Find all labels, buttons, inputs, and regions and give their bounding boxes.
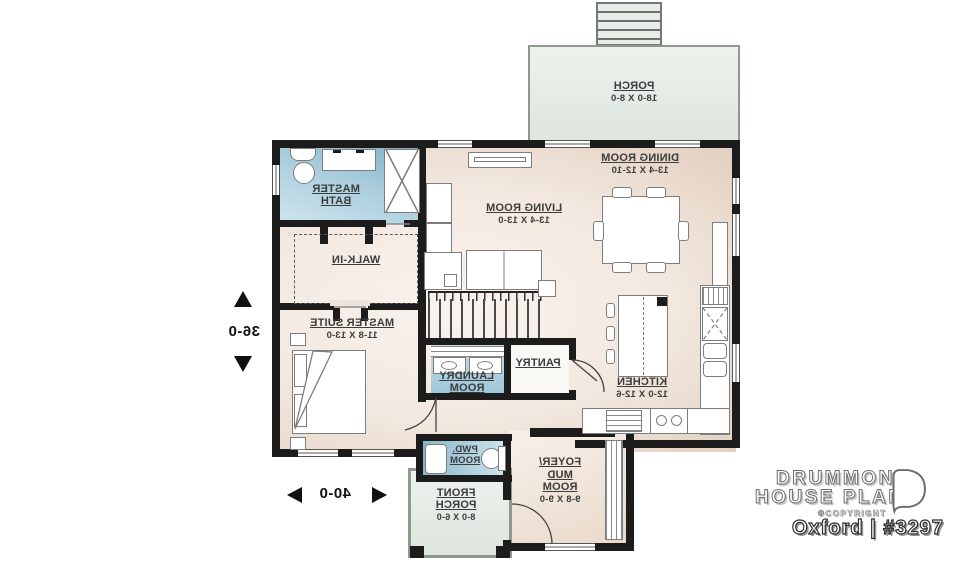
porch-post-right [496,546,510,558]
dining-chair [612,187,632,198]
kitchen-sink-bowl [703,361,727,377]
room-name: PANTRY [515,357,560,369]
floor-plan: PORCH 18-0 X 8-0 DINING ROOM 13-4 X 12-1… [0,0,960,569]
rear-steps [596,2,662,46]
room-label-powder: PWD. ROOM [446,443,484,469]
room-label-walkin: WALK-IN [328,253,384,267]
nightstand [290,437,306,450]
room-label-laundry: LAUNDRY ROOM [438,370,496,394]
stool [606,326,615,341]
dim-width-text: 40-0 [319,485,351,502]
burner [671,415,682,426]
room-name: FOYER/ MUD ROOM [530,456,590,493]
wall-laundry-pantry [504,340,511,400]
fridge [702,287,728,305]
room-label-porch: PORCH 18-0 X 8-0 [594,78,674,106]
room-label-dining: DINING ROOM 13-4 X 12-10 [592,150,688,178]
window [655,140,700,148]
corner-cabinet [702,307,728,341]
buffet [712,222,728,288]
room-dims: 13-4 X 13-0 [498,215,550,226]
logo-d-icon [884,462,930,514]
wall-foyer-right [626,434,634,551]
window [732,178,740,204]
dining-chair [646,262,666,273]
dryer-door [477,361,493,370]
dishwasher [606,410,642,432]
arrow-down-icon [234,356,252,372]
wall-pwd-top [416,434,512,441]
wall-bath-bottom2 [404,220,420,227]
room-dims: 18-0 X 8-0 [611,93,657,104]
wall-walkin-bottom1 [280,303,334,310]
side-table [538,280,556,297]
media-console-detail [474,157,526,162]
room-name: PORCH [614,80,655,92]
window [438,140,472,148]
window [545,543,595,551]
arrow-up-icon [234,291,252,307]
wall-stairs-bottom [424,338,576,345]
pwd-toilet-tank [498,446,506,471]
room-name: LAUNDRY ROOM [440,370,494,395]
room-label-foyer: FOYER/ MUD ROOM 9-8 X 9-0 [528,458,592,504]
wall-bath-bottom [280,220,386,227]
room-dims: 8-0 X 6-0 [437,512,476,523]
staircase [428,299,546,338]
arrow-right-icon [372,487,387,503]
room-name: DINING ROOM [601,152,679,164]
room-name: FRONT PORCH [433,487,479,512]
island-cooktop [657,297,667,306]
room-dims: 12-0 X 12-6 [616,389,668,400]
room-dims: 9-8 X 9-0 [540,494,581,505]
room-name: PWD. ROOM [447,445,483,466]
faucet [333,150,341,153]
pwd-sink [425,444,447,474]
window [298,449,338,457]
room-label-master-bath: MASTER BATH [308,180,364,210]
window [732,344,740,382]
dining-chair [678,221,689,241]
faucet [356,150,364,153]
loveseat [426,183,452,263]
window [732,214,740,256]
bath-vanity [322,149,376,171]
room-name: KITCHEN [617,376,667,388]
room-name: MASTER SUITE [310,317,394,329]
stool [606,349,615,364]
room-label-kitchen: KITCHEN 12-0 X 12-6 [611,374,673,402]
plan-title: Oxford | #3297 [792,517,944,540]
dining-chair [646,187,666,198]
dim-depth-text: 36-0 [228,323,260,340]
walkin-shelving [294,234,418,304]
window [272,165,280,195]
kitchen-sink-bowl [703,343,727,359]
pillow [294,354,307,387]
wall-bottom-kitchen [575,440,740,448]
sofa [466,250,542,290]
armchair-cushion [444,274,457,287]
room-name: WALK-IN [332,254,380,266]
room-label-master-suite: MASTER SUITE 11-8 X 13-0 [302,313,402,345]
room-name: MASTER BATH [308,183,364,208]
dining-chair [593,221,604,241]
shower [384,149,420,213]
burner [656,415,667,426]
room-label-living: LIVING ROOM 13-4 X 13-0 [476,200,572,228]
bath-sink [290,148,316,161]
room-label-pantry: PANTRY [512,356,564,370]
arrow-left-icon [287,487,302,503]
pillow [294,394,307,427]
window [545,140,590,148]
porch-post-left [410,546,424,558]
wall-pantry-right1 [569,338,576,360]
island-divider [643,297,644,375]
window [352,449,394,457]
mudroom-bench [605,440,623,540]
laundry-bifold-door [431,346,504,357]
wall-walkin-bottom2 [368,303,420,310]
room-dims: 11-8 X 13-0 [326,330,377,341]
stool [606,303,615,318]
washer-door [441,361,457,370]
wall-pwd-bottom [416,475,512,482]
walkin-opening [330,300,370,306]
dining-table [602,196,680,264]
room-dims: 13-4 X 12-10 [611,165,668,176]
dining-chair [612,262,632,273]
room-name: LIVING ROOM [486,202,562,214]
room-label-front-porch: FRONT PORCH 8-0 X 6-0 [430,484,482,526]
wall-bottom-suite [272,449,422,457]
